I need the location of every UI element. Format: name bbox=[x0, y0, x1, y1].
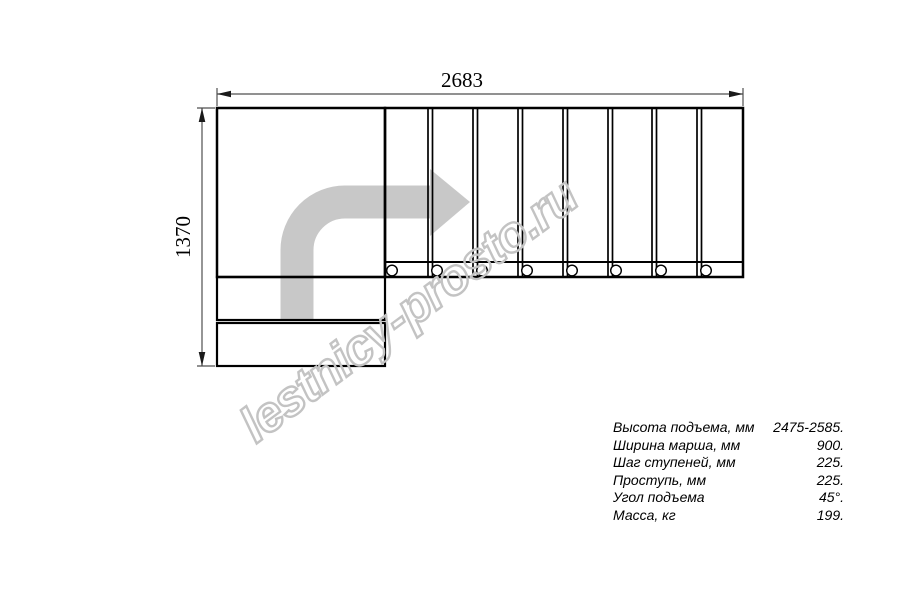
direction-arrow-head bbox=[430, 169, 470, 236]
spec-label: Ширина марша, мм bbox=[613, 437, 740, 455]
spec-row: Ширина марша, мм 900. bbox=[613, 437, 844, 455]
page: 2683 1370 lestnicy-prosto.ru Высота подъ… bbox=[0, 0, 900, 600]
spec-value: 199. bbox=[817, 507, 844, 525]
fastener-circle bbox=[611, 265, 622, 276]
spec-label: Масса, кг bbox=[613, 507, 676, 525]
spec-row: Угол подъема 45°. bbox=[613, 489, 844, 507]
spec-row: Шаг ступеней, мм 225. bbox=[613, 454, 844, 472]
width-dimension: 2683 bbox=[217, 68, 743, 106]
spec-value: 45°. bbox=[819, 489, 844, 507]
height-dimension: 1370 bbox=[171, 108, 215, 366]
fastener-circle bbox=[656, 265, 667, 276]
dimension-arrow-down-icon bbox=[199, 352, 206, 366]
fastener-circle bbox=[522, 265, 533, 276]
fastener-circle bbox=[701, 265, 712, 276]
dimension-arrow-left-icon bbox=[217, 91, 231, 98]
fastener-circle bbox=[387, 265, 398, 276]
spec-row: Масса, кг 199. bbox=[613, 507, 844, 525]
spec-row: Проступь, мм 225. bbox=[613, 472, 844, 490]
spec-value: 225. bbox=[817, 454, 844, 472]
spec-label: Высота подъема, мм bbox=[613, 419, 755, 437]
spec-row: Высота подъема, мм 2475-2585. bbox=[613, 419, 844, 437]
spec-value: 2475-2585. bbox=[773, 419, 844, 437]
spec-label: Шаг ступеней, мм bbox=[613, 454, 736, 472]
spec-label: Угол подъема bbox=[613, 489, 705, 507]
width-dimension-label: 2683 bbox=[441, 68, 483, 92]
spec-label: Проступь, мм bbox=[613, 472, 706, 490]
spec-value: 900. bbox=[817, 437, 844, 455]
height-dimension-label: 1370 bbox=[171, 216, 195, 258]
spec-value: 225. bbox=[817, 472, 844, 490]
dimension-arrow-up-icon bbox=[199, 108, 206, 122]
dimension-arrow-right-icon bbox=[729, 91, 743, 98]
spec-table: Высота подъема, мм 2475-2585. Ширина мар… bbox=[613, 419, 844, 525]
fastener-circle bbox=[567, 265, 578, 276]
